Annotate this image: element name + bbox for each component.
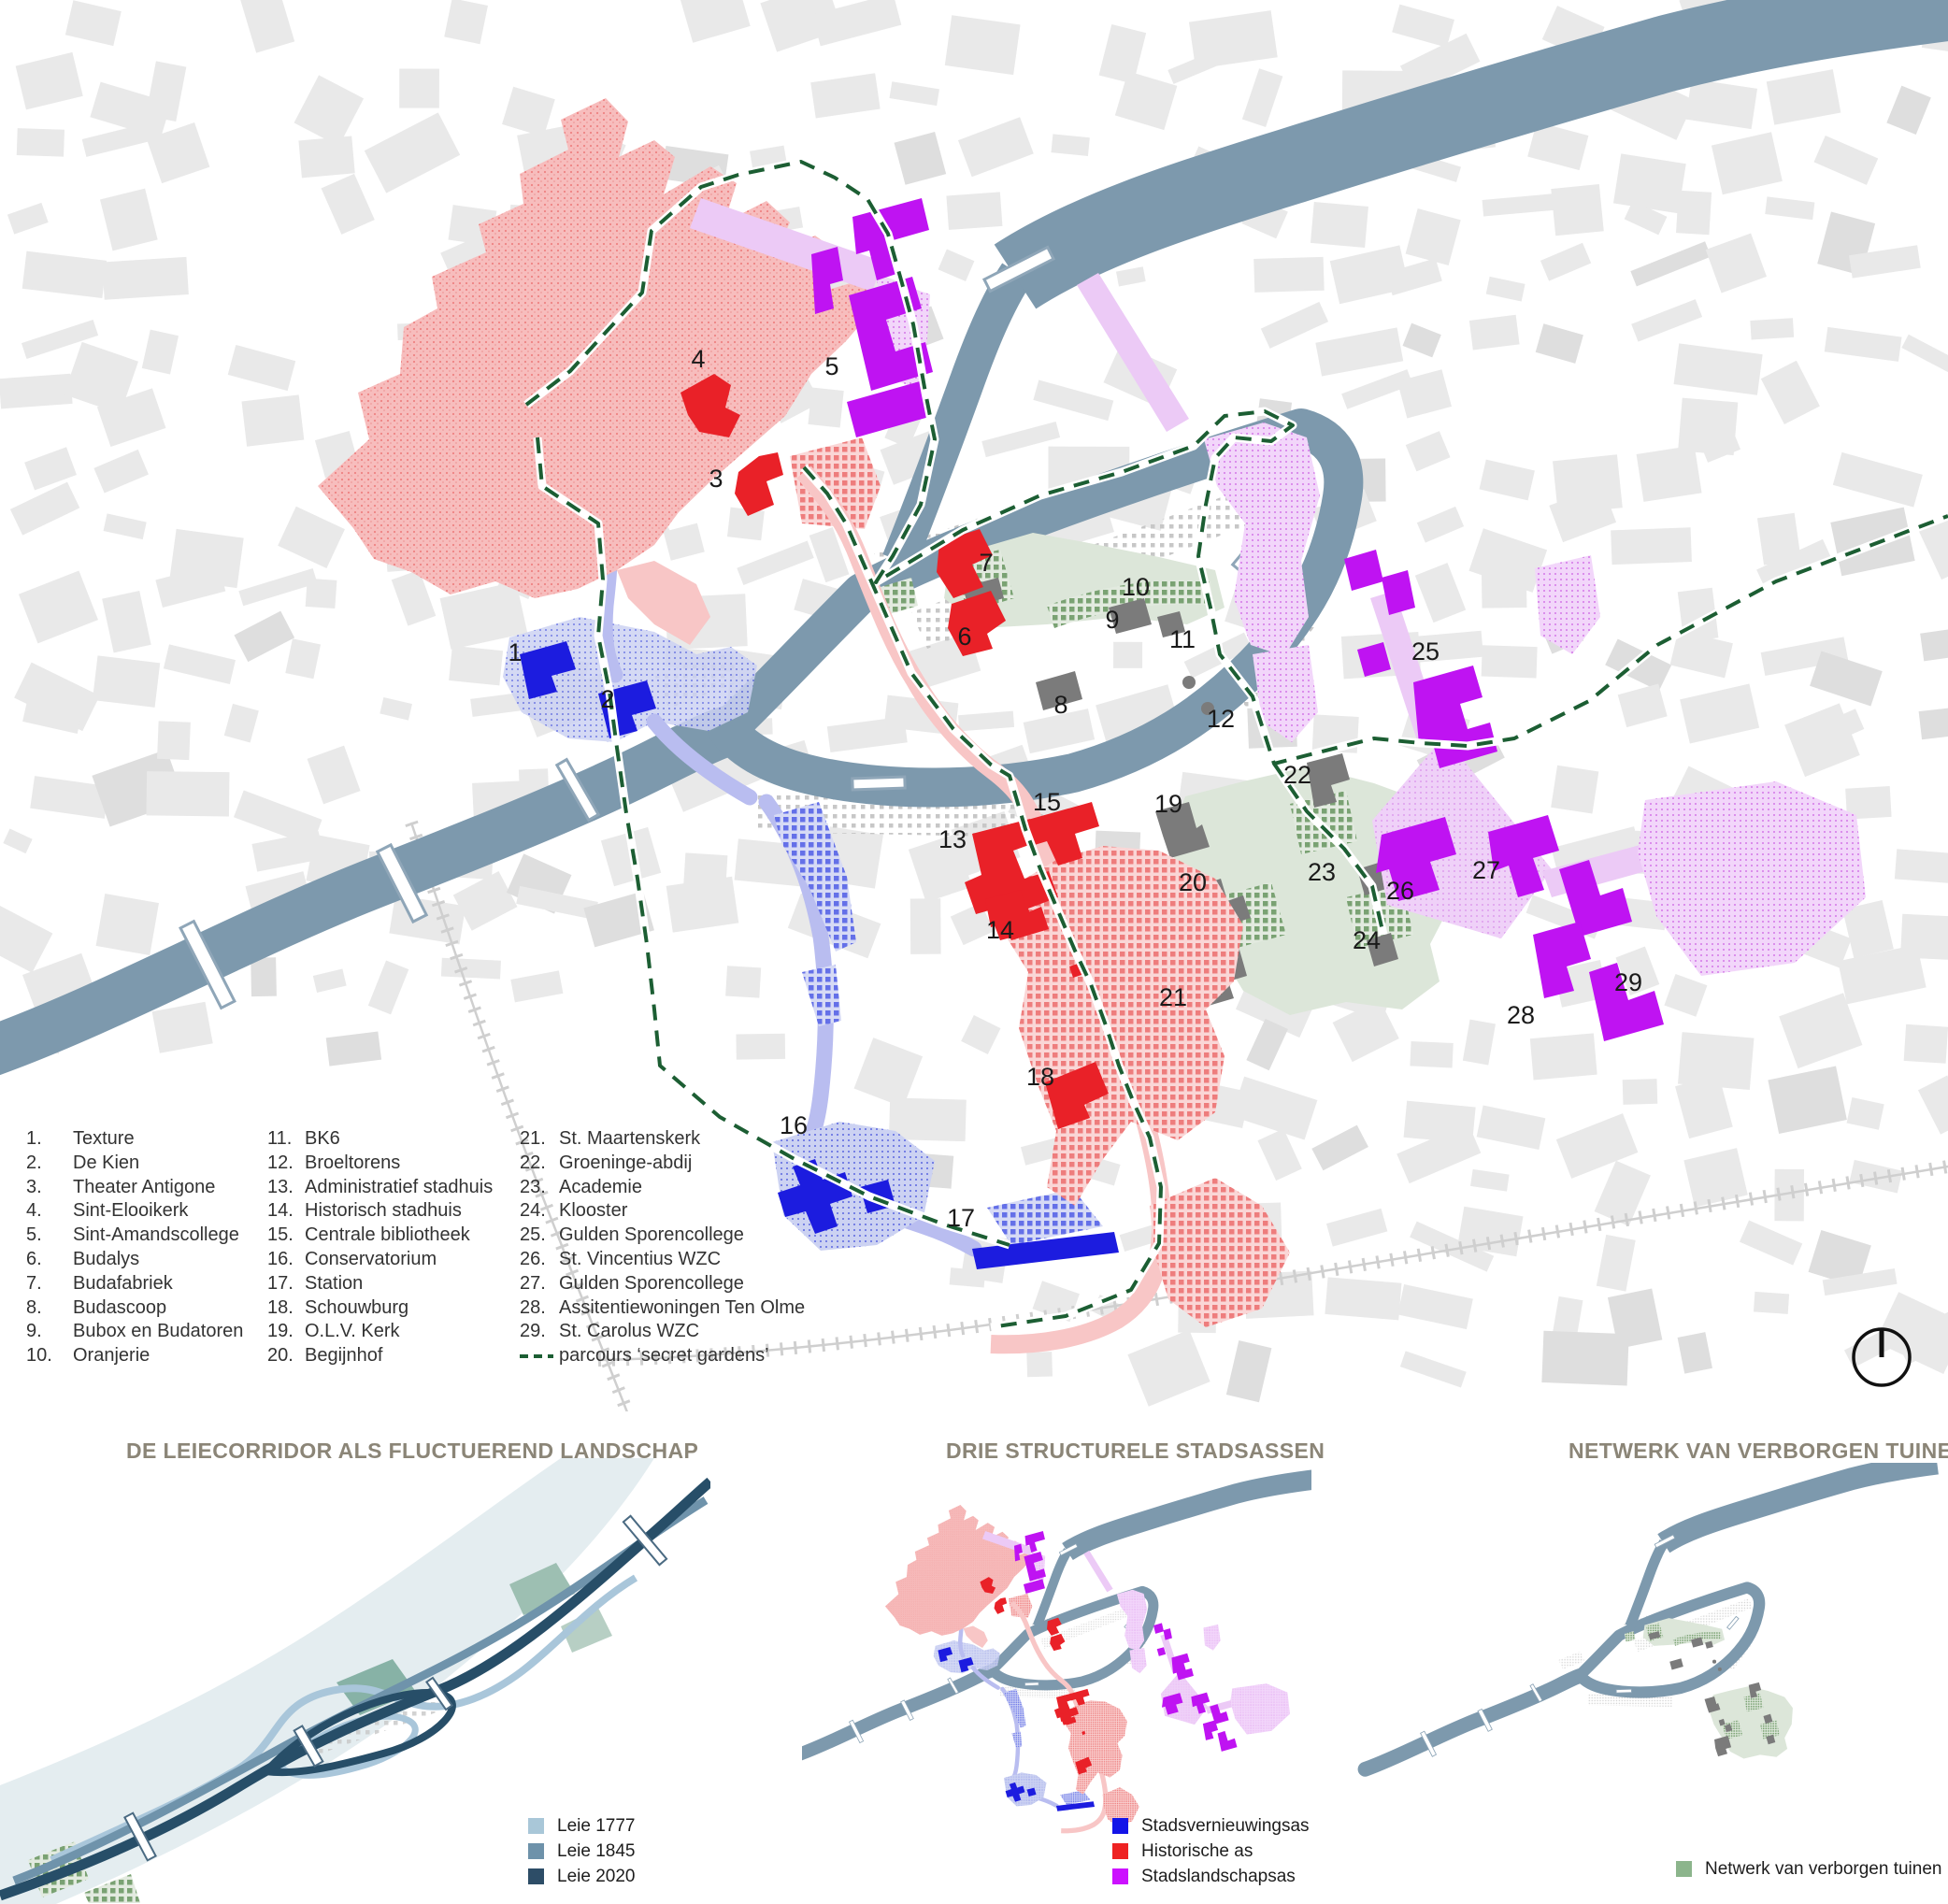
legend-item: 7.Budafabriek xyxy=(26,1272,243,1296)
legend-item: 2.De Kien xyxy=(26,1152,243,1176)
legend-item: Leie 1845 xyxy=(528,1839,635,1864)
legend-item: 12.Broeltorens xyxy=(267,1152,493,1176)
legend-item: 14.Historisch stadhuis xyxy=(267,1199,493,1224)
minimap-1-legend: Leie 1777Leie 1845Leie 2020 xyxy=(528,1813,635,1889)
legend-swatch xyxy=(1676,1861,1692,1877)
legend-item: 16.Conservatorium xyxy=(267,1248,493,1272)
map-marker-9: 9 xyxy=(1105,606,1119,634)
legend-swatch xyxy=(1112,1868,1128,1884)
map-marker-1: 1 xyxy=(508,638,522,666)
legend-item: 23.Academie xyxy=(520,1176,805,1200)
map-marker-6: 6 xyxy=(957,623,971,651)
main-legend: 1.Texture2.De Kien3.Theater Antigone4.Si… xyxy=(26,1127,849,1380)
map-marker-20: 20 xyxy=(1179,868,1207,896)
legend-item: 21.St. Maartenskerk xyxy=(520,1127,805,1152)
legend-item: 28.Assitentiewoningen Ten Olme xyxy=(520,1296,805,1321)
legend-item: 24.Klooster xyxy=(520,1199,805,1224)
map-marker-15: 15 xyxy=(1033,788,1061,816)
legend-item: 26.St. Vincentius WZC xyxy=(520,1248,805,1272)
legend-item: 20.Begijnhof xyxy=(267,1344,493,1368)
map-marker-14: 14 xyxy=(986,916,1014,944)
map-marker-7: 7 xyxy=(979,549,993,577)
map-marker-22: 22 xyxy=(1283,761,1311,789)
legend-item: 27.Gulden Sporencollege xyxy=(520,1272,805,1296)
legend-item: 5.Sint-Amandscollege xyxy=(26,1224,243,1248)
legend-swatch xyxy=(1112,1843,1128,1859)
minimap-2-title: DRIE STRUCTURELE STADSASSEN xyxy=(946,1439,1325,1464)
legend-item-parcours: parcours ‘secret gardens’ xyxy=(520,1344,805,1368)
legend-swatch xyxy=(1112,1818,1128,1834)
map-marker-5: 5 xyxy=(824,352,838,380)
minimap-3-legend: Netwerk van verborgen tuinen xyxy=(1676,1856,1941,1882)
map-marker-8: 8 xyxy=(1053,691,1067,719)
legend-item: Leie 1777 xyxy=(528,1813,635,1839)
map-marker-19: 19 xyxy=(1154,790,1182,818)
legend-item: 15.Centrale bibliotheek xyxy=(267,1224,493,1248)
map-marker-11: 11 xyxy=(1169,625,1196,653)
map-marker-12: 12 xyxy=(1207,705,1235,733)
map-marker-23: 23 xyxy=(1308,858,1336,886)
legend-item: 17.Station xyxy=(267,1272,493,1296)
map-marker-29: 29 xyxy=(1614,968,1642,996)
legend-item: 1.Texture xyxy=(26,1127,243,1152)
map-marker-17: 17 xyxy=(947,1204,975,1232)
legend-item: 18.Schouwburg xyxy=(267,1296,493,1321)
minimap-3-canvas xyxy=(1355,1463,1948,1874)
legend-item: Leie 2020 xyxy=(528,1864,635,1889)
map-marker-18: 18 xyxy=(1026,1063,1054,1091)
legend-item: 11.BK6 xyxy=(267,1127,493,1152)
legend-item: Historische as xyxy=(1112,1839,1310,1864)
legend-item: 19.O.L.V. Kerk xyxy=(267,1320,493,1344)
map-marker-24: 24 xyxy=(1353,926,1381,954)
dashed-line-icon xyxy=(520,1354,553,1358)
minimap-2-legend: StadsvernieuwingsasHistorische asStadsla… xyxy=(1112,1813,1310,1889)
legend-column-2: 11.BK612.Broeltorens13.Administratief st… xyxy=(267,1127,493,1368)
map-marker-10: 10 xyxy=(1122,573,1150,601)
map-marker-28: 28 xyxy=(1507,1001,1535,1029)
legend-column-1: 1.Texture2.De Kien3.Theater Antigone4.Si… xyxy=(26,1127,243,1368)
legend-column-3: 21.St. Maartenskerk22.Groeninge-abdij23.… xyxy=(520,1127,805,1368)
legend-item: 4.Sint-Elooikerk xyxy=(26,1199,243,1224)
bridge-icon xyxy=(852,777,905,790)
map-marker-13: 13 xyxy=(938,825,967,853)
map-marker-2: 2 xyxy=(600,685,614,713)
map-marker-21: 21 xyxy=(1159,983,1187,1011)
map-marker-26: 26 xyxy=(1386,877,1414,905)
legend-item: 13.Administratief stadhuis xyxy=(267,1176,493,1200)
map-marker-25: 25 xyxy=(1411,637,1440,666)
legend-item: Stadsvernieuwingsas xyxy=(1112,1813,1310,1839)
legend-item: 6.Budalys xyxy=(26,1248,243,1272)
legend-item: 8.Budascoop xyxy=(26,1296,243,1321)
legend-item: 10.Oranjerie xyxy=(26,1344,243,1368)
legend-item: 3.Theater Antigone xyxy=(26,1176,243,1200)
legend-item: 29.St. Carolus WZC xyxy=(520,1320,805,1344)
map-marker-4: 4 xyxy=(691,345,705,373)
legend-swatch xyxy=(528,1843,544,1859)
legend-item: 22.Groeninge-abdij xyxy=(520,1152,805,1176)
legend-item: Stadslandschapsas xyxy=(1112,1864,1310,1889)
map-marker-3: 3 xyxy=(709,465,723,493)
legend-item: Netwerk van verborgen tuinen xyxy=(1676,1856,1941,1882)
legend-swatch xyxy=(528,1868,544,1884)
poster-page: 1234567891011121314151617181920212223242… xyxy=(0,0,1948,1904)
map-marker-27: 27 xyxy=(1472,856,1500,884)
legend-swatch xyxy=(528,1818,544,1834)
minimap-2-canvas xyxy=(802,1463,1311,1865)
minimap-3-title: NETWERK VAN VERBORGEN TUINEN xyxy=(1568,1439,1948,1464)
legend-item: 9.Bubox en Budatoren xyxy=(26,1320,243,1344)
legend-item: 25.Gulden Sporencollege xyxy=(520,1224,805,1248)
